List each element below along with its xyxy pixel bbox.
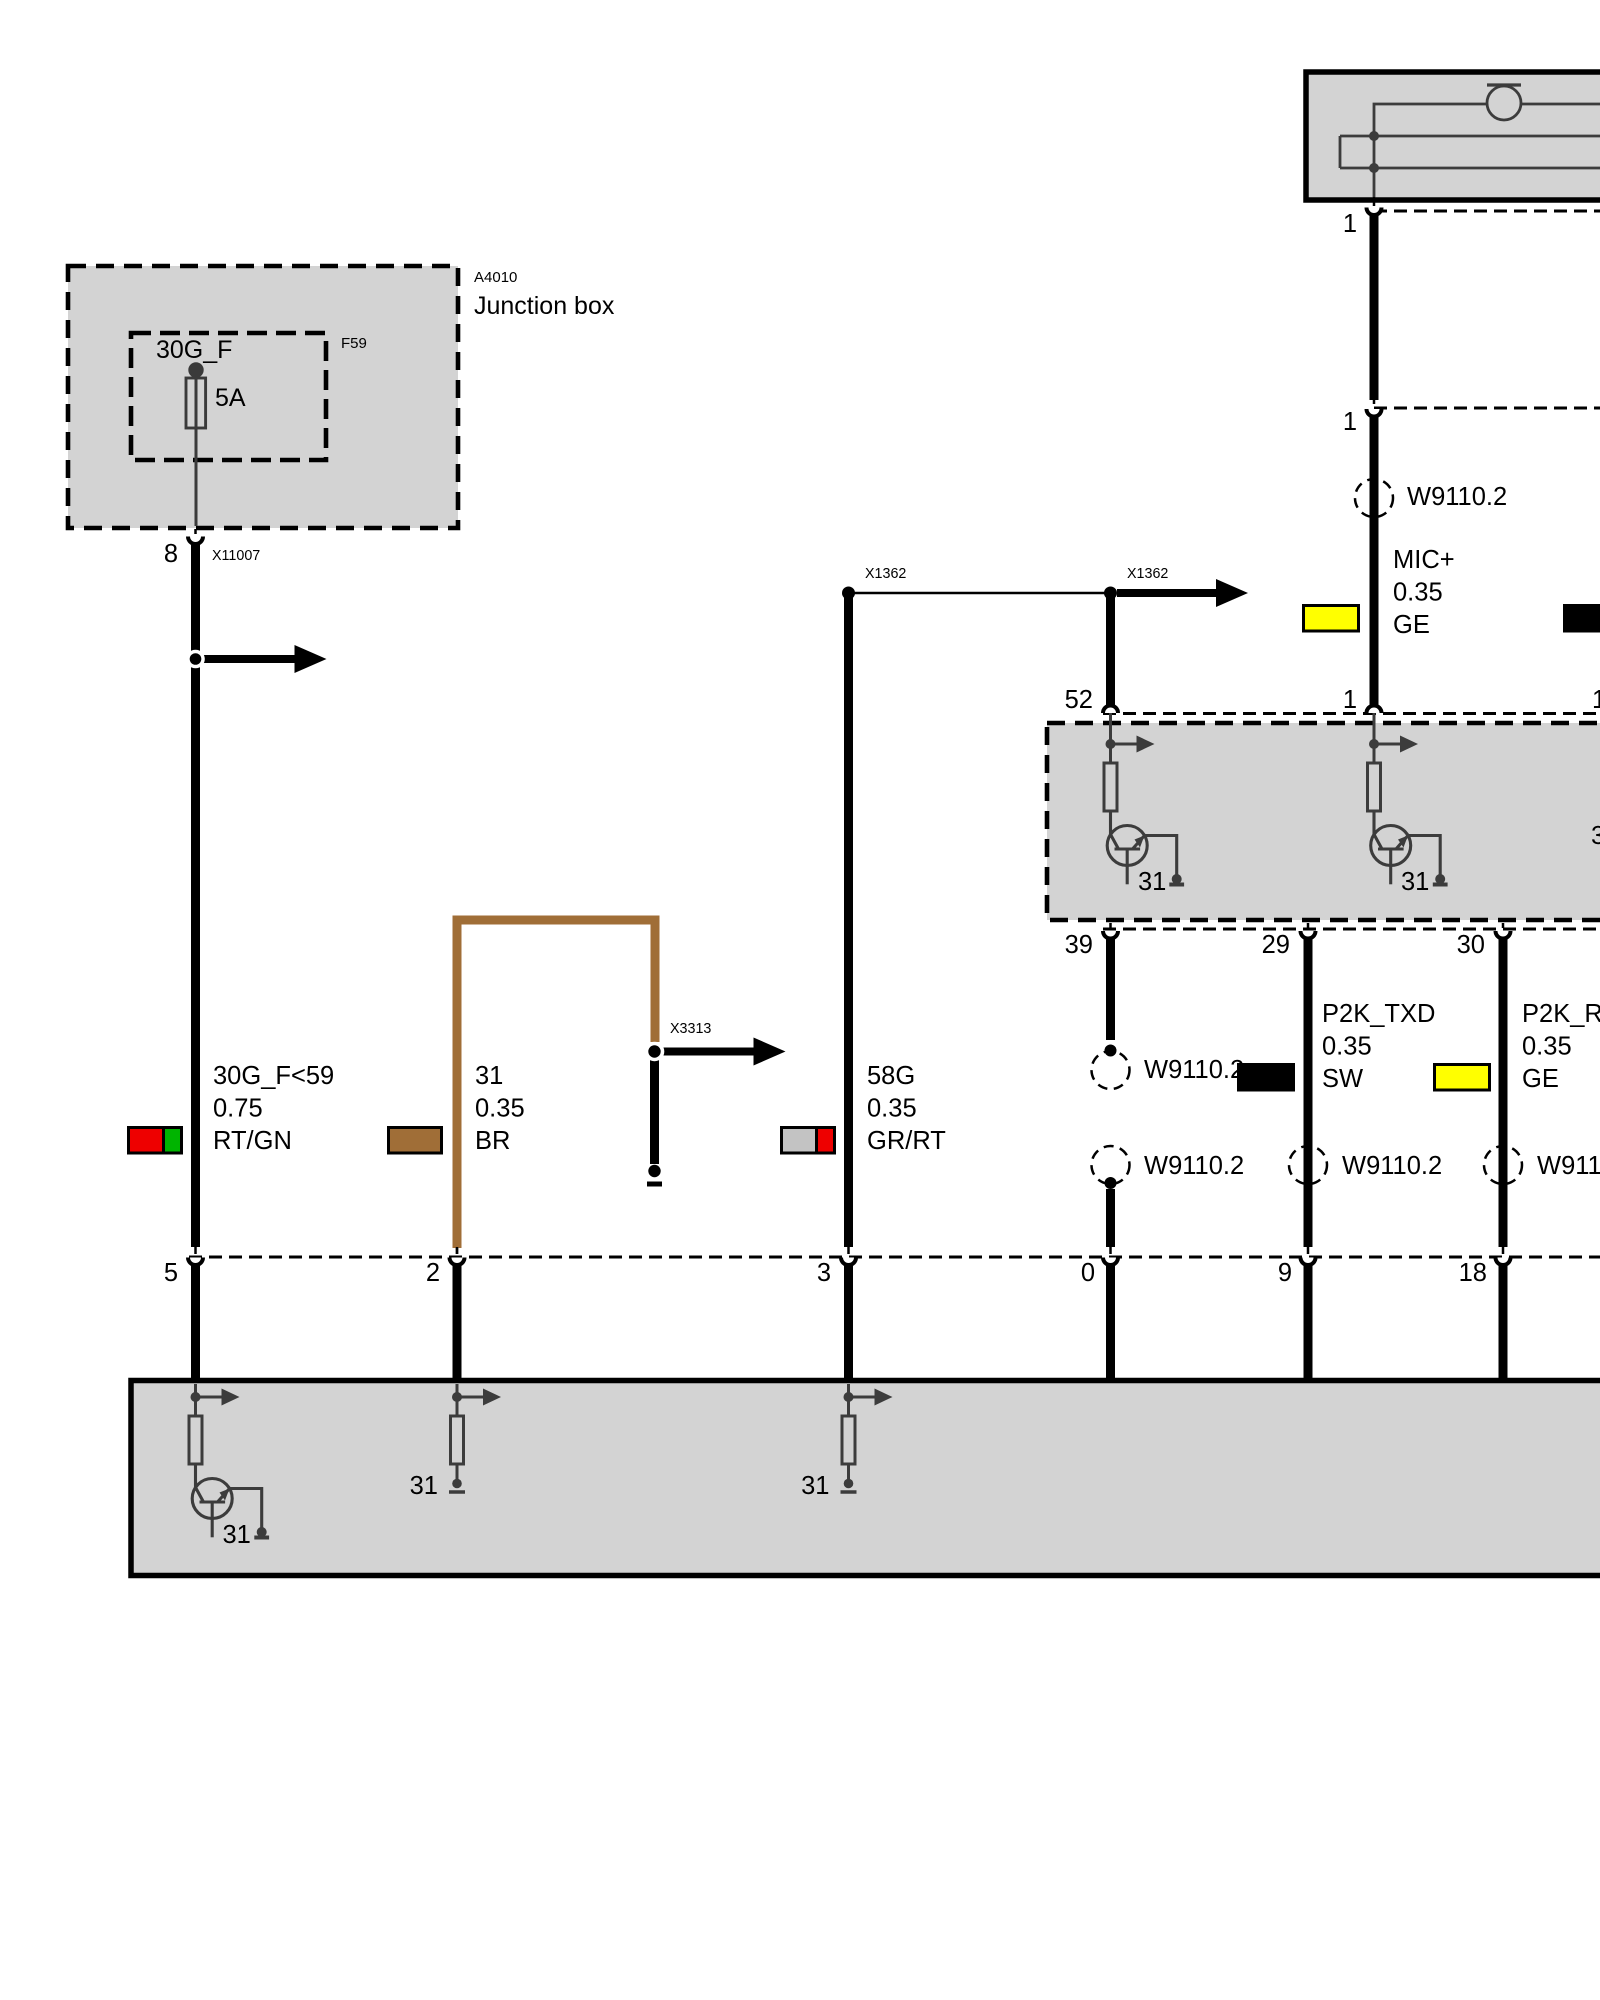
svg-text:30: 30	[1457, 931, 1485, 959]
svg-text:31: 31	[801, 1472, 829, 1500]
svg-text:MIC+: MIC+	[1393, 546, 1455, 574]
svg-text:31: 31	[223, 1521, 251, 1549]
svg-text:3: 3	[817, 1259, 831, 1287]
svg-text:X3313: X3313	[670, 1021, 711, 1037]
svg-text:0.35: 0.35	[475, 1095, 525, 1123]
svg-text:2: 2	[426, 1259, 440, 1287]
svg-text:0.35: 0.35	[1522, 1033, 1572, 1061]
svg-text:29: 29	[1262, 931, 1290, 959]
svg-text:1: 1	[1343, 210, 1357, 238]
svg-text:P2K_TXD: P2K_TXD	[1322, 1000, 1435, 1028]
svg-text:5: 5	[164, 1259, 178, 1287]
svg-text:W9110.2: W9110.2	[1144, 1152, 1244, 1180]
svg-text:31: 31	[1401, 868, 1429, 896]
svg-text:W9110.2: W9110.2	[1537, 1152, 1600, 1180]
svg-text:0.35: 0.35	[1393, 579, 1443, 607]
svg-text:31: 31	[410, 1472, 438, 1500]
svg-text:SW: SW	[1322, 1065, 1363, 1093]
svg-text:BR: BR	[475, 1127, 510, 1155]
svg-text:0.35: 0.35	[867, 1095, 917, 1123]
svg-text:W9110.2: W9110.2	[1144, 1056, 1244, 1084]
svg-text:F59: F59	[341, 335, 367, 352]
svg-text:1: 1	[1343, 686, 1357, 714]
svg-text:5A: 5A	[215, 384, 246, 412]
svg-text:9: 9	[1278, 1259, 1292, 1287]
svg-text:18: 18	[1459, 1259, 1487, 1287]
svg-text:P2K_RXD: P2K_RXD	[1522, 1000, 1600, 1028]
svg-text:X1362: X1362	[865, 566, 906, 582]
svg-text:30G_F: 30G_F	[156, 336, 232, 364]
svg-text:GE: GE	[1393, 611, 1430, 639]
svg-text:58G: 58G	[867, 1062, 915, 1090]
svg-text:3: 3	[1591, 822, 1600, 850]
svg-text:52: 52	[1065, 686, 1093, 714]
svg-text:GE: GE	[1522, 1065, 1559, 1093]
svg-text:0.75: 0.75	[213, 1095, 263, 1123]
svg-text:0.35: 0.35	[1322, 1033, 1372, 1061]
svg-text:W9110.2: W9110.2	[1342, 1152, 1442, 1180]
svg-text:31: 31	[475, 1062, 503, 1090]
svg-text:1: 1	[1592, 686, 1600, 714]
svg-text:0: 0	[1081, 1259, 1095, 1287]
svg-text:X1362: X1362	[1127, 566, 1168, 582]
svg-text:31: 31	[1138, 868, 1166, 896]
svg-text:GR/RT: GR/RT	[867, 1127, 946, 1155]
svg-text:W9110.2: W9110.2	[1407, 483, 1507, 511]
svg-text:Junction box: Junction box	[474, 292, 615, 320]
svg-text:RT/GN: RT/GN	[213, 1127, 292, 1155]
svg-text:A4010: A4010	[474, 269, 517, 286]
svg-text:X11007: X11007	[212, 548, 260, 564]
svg-text:1: 1	[1343, 408, 1357, 436]
svg-text:30G_F<59: 30G_F<59	[213, 1062, 334, 1090]
svg-text:39: 39	[1065, 931, 1093, 959]
svg-text:8: 8	[164, 540, 178, 568]
